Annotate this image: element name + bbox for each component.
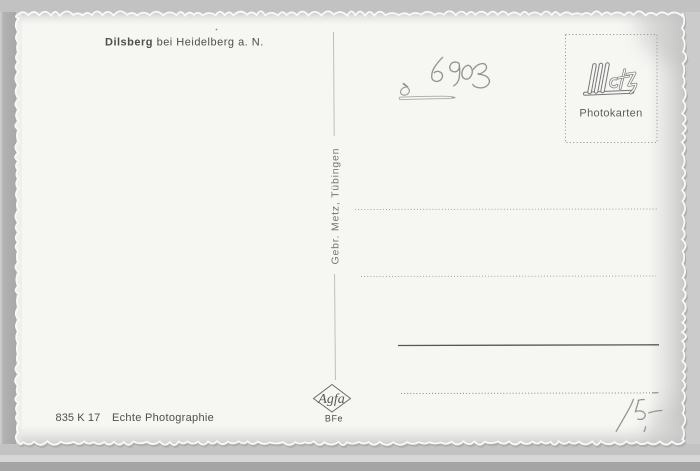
svg-text:Agfa: Agfa: [317, 392, 344, 407]
svg-text:Dilsberg bei Heidelberg a. N.: Dilsberg bei Heidelberg a. N.: [105, 37, 264, 49]
svg-text:Echte Photographie: Echte Photographie: [112, 412, 214, 424]
svg-text:BFe: BFe: [325, 414, 343, 424]
svg-text:Photokarten: Photokarten: [579, 108, 642, 120]
svg-text:Gebr. Metz, Tübingen: Gebr. Metz, Tübingen: [330, 148, 342, 265]
svg-text:835 K 17: 835 K 17: [56, 412, 101, 424]
